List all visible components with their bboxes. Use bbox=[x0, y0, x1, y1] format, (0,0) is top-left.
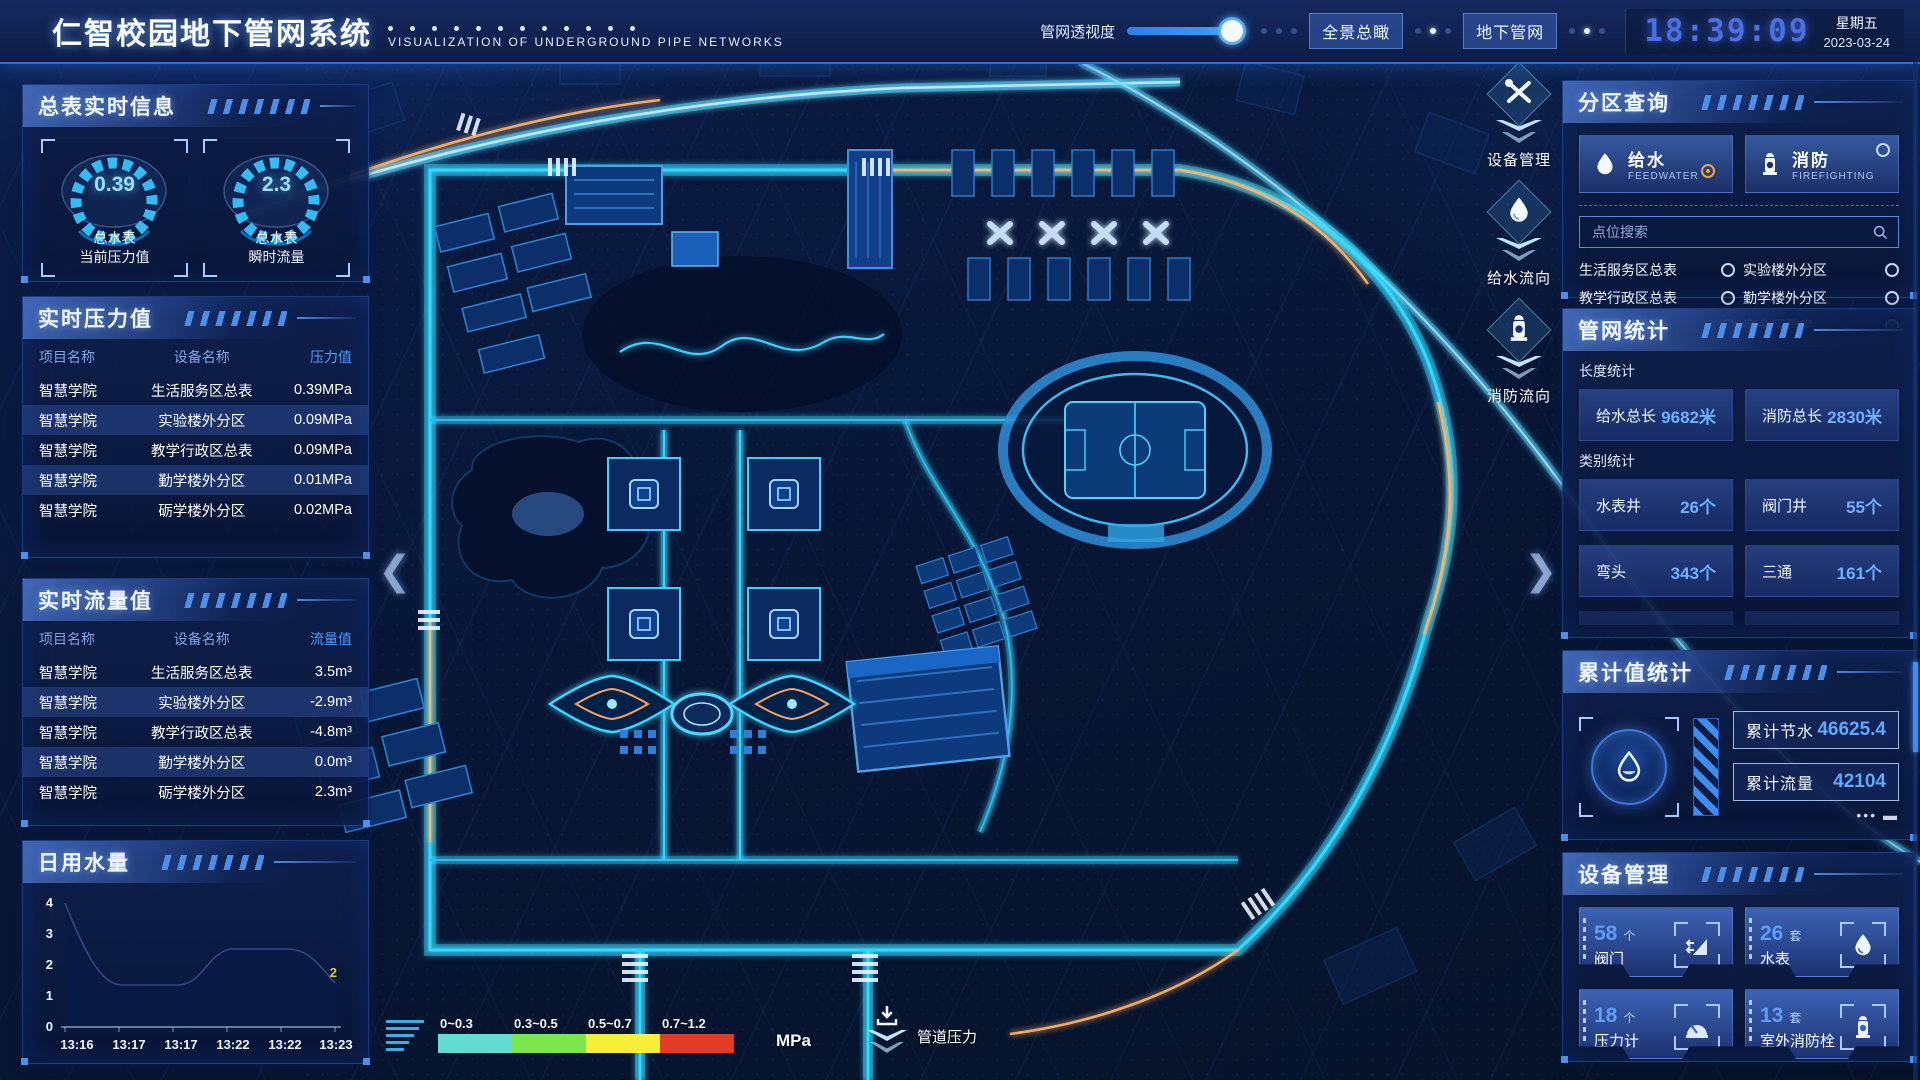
point-search[interactable] bbox=[1579, 216, 1899, 248]
svg-text:1: 1 bbox=[46, 988, 53, 1003]
panel-title: 总表实时信息 bbox=[23, 91, 176, 121]
slashes-decor bbox=[1719, 665, 1827, 680]
pipe-pressure-toggle[interactable] bbox=[867, 1006, 907, 1053]
svg-text:13:17: 13:17 bbox=[164, 1037, 197, 1052]
cumulative-water-saved: 累计节水 46625.4 bbox=[1733, 711, 1899, 749]
stat-fire-length: 消防总长2830米 bbox=[1745, 389, 1899, 441]
panel-title: 分区查询 bbox=[1563, 87, 1670, 117]
water-drop-icon bbox=[1592, 151, 1618, 177]
pipe-pressure-label: 管道压力 bbox=[917, 1026, 977, 1047]
flow-table: 智慧学院生活服务区总表3.5m³ 智慧学院实验楼外分区-2.9m³ 智慧学院教学… bbox=[23, 657, 368, 825]
water-drop-icon bbox=[1850, 932, 1876, 958]
chevron-down-icon bbox=[870, 1042, 904, 1053]
slider-fill bbox=[1127, 27, 1232, 35]
pressure-row: 智慧学院砺学楼外分区0.02MPa bbox=[23, 495, 368, 525]
panel-title: 实时压力值 bbox=[23, 303, 153, 333]
stat-elbow: 弯头343个 bbox=[1579, 545, 1733, 597]
gauge-value: 2.3 bbox=[203, 173, 350, 197]
clock: 18:39:09 星期五 2023-03-24 bbox=[1625, 9, 1904, 54]
legend-decor-bars bbox=[386, 1020, 424, 1051]
gauge-pressure: 0.39 总水表 当前压力值 bbox=[41, 139, 188, 277]
radio-icon[interactable] bbox=[1885, 291, 1899, 305]
stat-valve-well: 阀门井55个 bbox=[1745, 479, 1899, 531]
panel-cumulative-stats: 累计值统计 累计节水 46625.4 累计流量 42104 ••• ▬ bbox=[1562, 650, 1916, 840]
svg-text:13:16: 13:16 bbox=[60, 1037, 93, 1052]
date: 2023-03-24 bbox=[1824, 35, 1891, 50]
weekday: 星期五 bbox=[1836, 13, 1878, 33]
slashes-decor bbox=[202, 99, 310, 114]
underground-pipes-button[interactable]: 地下管网 bbox=[1463, 13, 1557, 49]
brand: 仁智校园地下管网系统 VISUALIZATION OF UNDERGROUND … bbox=[52, 9, 784, 53]
panel-device-management: 设备管理 58个 阀门 26套 水表 18个 bbox=[1562, 852, 1916, 1062]
chevron-down-icon bbox=[1502, 132, 1536, 143]
svg-text:0: 0 bbox=[46, 1019, 53, 1034]
fire-hydrant-icon bbox=[1505, 312, 1533, 344]
svg-text:3: 3 bbox=[46, 926, 53, 941]
legend-seg-yellow bbox=[586, 1034, 660, 1053]
svg-text:13:22: 13:22 bbox=[268, 1037, 301, 1052]
svg-text:13:17: 13:17 bbox=[112, 1037, 145, 1052]
map-feedwater-flow-button[interactable]: 给水流向 bbox=[1487, 184, 1551, 288]
tools-icon bbox=[1502, 76, 1536, 108]
radio-icon[interactable] bbox=[1876, 143, 1890, 157]
app-subtitle: VISUALIZATION OF UNDERGROUND PIPE NETWOR… bbox=[388, 35, 784, 49]
pipe-pressure-legend: 0~0.3 0.3~0.5 0.5~0.7 0.7~1.2 MPa 管道压力 bbox=[386, 1006, 977, 1053]
stat-clipped bbox=[1579, 611, 1733, 625]
valve-icon bbox=[1683, 931, 1711, 959]
device-card-valve[interactable]: 58个 阀门 bbox=[1579, 907, 1733, 977]
page-scrollbar[interactable] bbox=[1913, 62, 1918, 1080]
pressure-row: 智慧学院教学行政区总表0.09MPa bbox=[23, 435, 368, 465]
panel-meter-realtime: 总表实时信息 0.39 总水表 当前压力值 bbox=[22, 84, 369, 282]
water-drop-icon bbox=[1612, 750, 1646, 784]
dots-decor bbox=[1261, 28, 1297, 34]
gauge-value: 0.39 bbox=[41, 173, 188, 197]
legend-seg-green bbox=[512, 1034, 586, 1053]
gauge-flow: 2.3 总水表 瞬时流量 bbox=[203, 139, 350, 277]
legend-seg-red bbox=[660, 1034, 734, 1053]
time-display: 18:39:09 bbox=[1644, 13, 1809, 49]
scrollbar-thumb[interactable] bbox=[1913, 662, 1918, 752]
slider-thumb[interactable] bbox=[1218, 17, 1246, 45]
slashes-decor bbox=[1696, 95, 1804, 110]
radio-selected-icon[interactable] bbox=[1701, 164, 1715, 178]
table-header: 项目名称 设备名称 压力值 bbox=[23, 339, 368, 375]
chevron-down-icon bbox=[1502, 250, 1536, 261]
svg-text:13:22: 13:22 bbox=[216, 1037, 249, 1052]
dots-decor bbox=[1569, 28, 1605, 34]
legend-unit: MPa bbox=[776, 1031, 811, 1051]
length-stats-label: 长度统计 bbox=[1563, 351, 1915, 389]
device-card-pressure-gauge[interactable]: 18个 压力计 bbox=[1579, 989, 1733, 1059]
flow-row: 智慧学院教学行政区总表-4.8m³ bbox=[23, 717, 368, 747]
map-device-management-button[interactable]: 设备管理 bbox=[1487, 66, 1551, 170]
panel-network-stats: 管网统计 长度统计 给水总长9682米 消防总长2830米 类别统计 水表井26… bbox=[1562, 308, 1916, 638]
device-card-water-meter[interactable]: 26套 水表 bbox=[1745, 907, 1899, 977]
header-dots-decor bbox=[388, 26, 784, 31]
fire-hydrant-icon bbox=[1851, 1014, 1875, 1040]
hatch-decor bbox=[1693, 718, 1719, 816]
stat-feedwater-length: 给水总长9682米 bbox=[1579, 389, 1733, 441]
panel-title: 管网统计 bbox=[1563, 315, 1670, 345]
panorama-button[interactable]: 全景总瞰 bbox=[1309, 13, 1403, 49]
slashes-decor bbox=[1696, 323, 1804, 338]
slashes-decor bbox=[179, 593, 287, 608]
pressure-row: 智慧学院生活服务区总表0.39MPa bbox=[23, 375, 368, 405]
download-arrow-icon bbox=[874, 1006, 900, 1028]
flow-row: 智慧学院实验楼外分区-2.9m³ bbox=[23, 687, 368, 717]
pressure-row: 智慧学院勤学楼外分区0.01MPa bbox=[23, 465, 368, 495]
stat-tee: 三通161个 bbox=[1745, 545, 1899, 597]
water-icon-frame bbox=[1579, 717, 1679, 817]
panel-title: 实时流量值 bbox=[23, 585, 153, 615]
cumulative-flow: 累计流量 42104 bbox=[1733, 763, 1899, 801]
water-drop-badge bbox=[1591, 729, 1667, 805]
pipe-opacity-slider[interactable] bbox=[1127, 27, 1249, 35]
legend-seg-cyan bbox=[438, 1034, 512, 1053]
search-input[interactable] bbox=[1590, 223, 1873, 241]
map-pan-left-arrow[interactable]: ❮ bbox=[378, 548, 412, 594]
svg-text:2: 2 bbox=[46, 957, 53, 972]
dots-decor bbox=[1415, 28, 1451, 34]
chevron-down-icon bbox=[867, 1030, 907, 1041]
flow-row: 智慧学院勤学楼外分区0.0m³ bbox=[23, 747, 368, 777]
dashboard-screen: 仁智校园地下管网系统 VISUALIZATION OF UNDERGROUND … bbox=[0, 0, 1920, 1080]
firefighting-tab[interactable]: 消防FIREFIGHTING bbox=[1745, 135, 1899, 193]
panel-realtime-flow: 实时流量值 项目名称 设备名称 流量值 智慧学院生活服务区总表3.5m³ 智慧学… bbox=[22, 578, 369, 826]
top-header: 仁智校园地下管网系统 VISUALIZATION OF UNDERGROUND … bbox=[0, 0, 1920, 64]
search-icon[interactable] bbox=[1873, 225, 1888, 240]
daily-water-chart: 4 3 2 1 0 2 13:16 13:17 13:17 13:22 13:2… bbox=[23, 883, 368, 1064]
slashes-decor bbox=[156, 855, 264, 870]
panel-zone-query: 分区查询 给水FEEDWATER 消防FIREFIGHTING 生活服务区总表 bbox=[1562, 80, 1916, 298]
stat-clipped bbox=[1745, 611, 1899, 625]
radio-icon[interactable] bbox=[1721, 291, 1735, 305]
svg-text:2: 2 bbox=[330, 965, 337, 980]
stat-water-meter-well: 水表井26个 bbox=[1579, 479, 1733, 531]
panel-title: 日用水量 bbox=[23, 847, 130, 877]
pressure-gauge-icon bbox=[1683, 1013, 1711, 1041]
feedwater-tab[interactable]: 给水FEEDWATER bbox=[1579, 135, 1733, 193]
panel-header: 总表实时信息 bbox=[23, 85, 368, 127]
svg-text:13:23: 13:23 bbox=[319, 1037, 352, 1052]
panel-title: 累计值统计 bbox=[1563, 657, 1693, 687]
radio-icon[interactable] bbox=[1721, 263, 1735, 277]
zone-item[interactable]: 生活服务区总表 bbox=[1579, 256, 1735, 284]
pressure-table: 智慧学院生活服务区总表0.39MPa 智慧学院实验楼外分区0.09MPa 智慧学… bbox=[23, 375, 368, 557]
water-drop-icon bbox=[1504, 194, 1534, 226]
radio-icon[interactable] bbox=[1885, 263, 1899, 277]
flow-row: 智慧学院砺学楼外分区2.3m³ bbox=[23, 777, 368, 807]
pipe-opacity-label: 管网透视度 bbox=[1040, 21, 1115, 42]
flow-row: 智慧学院生活服务区总表3.5m³ bbox=[23, 657, 368, 687]
chevron-down-icon bbox=[1502, 368, 1536, 379]
map-fire-flow-button[interactable]: 消防流向 bbox=[1487, 302, 1551, 406]
map-pan-right-arrow[interactable]: ❯ bbox=[1524, 548, 1558, 594]
table-header: 项目名称 设备名称 流量值 bbox=[23, 621, 368, 657]
fire-hydrant-icon bbox=[1758, 151, 1782, 177]
category-stats-label: 类别统计 bbox=[1563, 441, 1915, 479]
pressure-row: 智慧学院实验楼外分区0.09MPa bbox=[23, 405, 368, 435]
dots-decor: ••• ▬ bbox=[1856, 807, 1899, 823]
svg-text:4: 4 bbox=[46, 895, 54, 910]
slashes-decor bbox=[1696, 867, 1804, 882]
panel-title: 设备管理 bbox=[1563, 859, 1670, 889]
device-card-hydrant[interactable]: 13套 室外消防栓 bbox=[1745, 989, 1899, 1059]
slashes-decor bbox=[179, 311, 287, 326]
panel-realtime-pressure: 实时压力值 项目名称 设备名称 压力值 智慧学院生活服务区总表0.39MPa 智… bbox=[22, 296, 369, 558]
zone-item[interactable]: 实验楼外分区 bbox=[1743, 256, 1899, 284]
app-title: 仁智校园地下管网系统 bbox=[52, 9, 372, 53]
panel-daily-water: 日用水量 4 3 2 1 0 2 13:16 13:17 1 bbox=[22, 840, 369, 1064]
